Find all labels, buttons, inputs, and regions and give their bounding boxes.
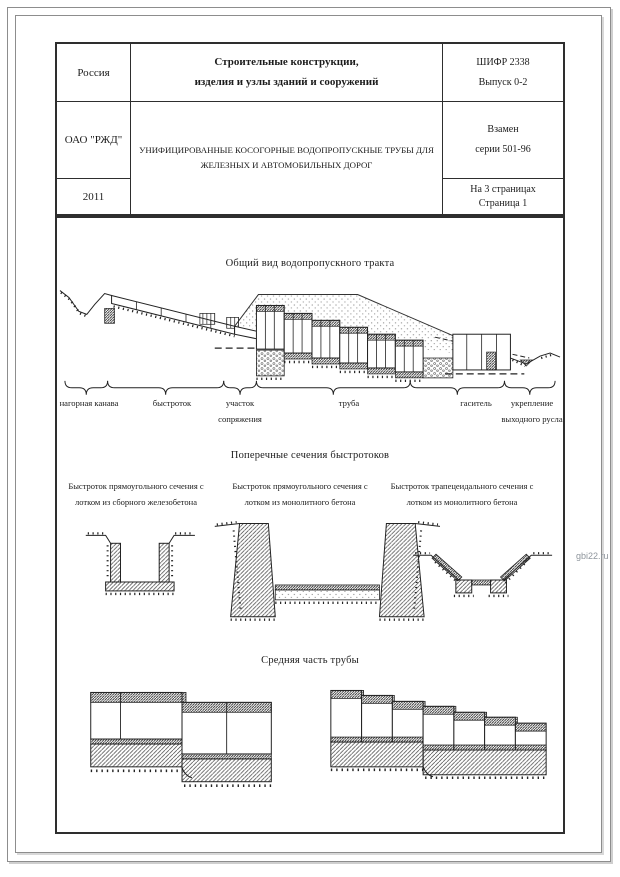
code-line2: Выпуск 0-2: [479, 73, 528, 93]
subject-title: УНИФИЦИРОВАННЫЕ КОСОГОРНЫЕ ВОДОПРОПУСКНЫ…: [139, 143, 434, 173]
label-transition-section: участок сопряжения: [203, 396, 277, 428]
foundation-block-left: [256, 350, 284, 376]
drawing-area: Общий вид водопропускного тракта: [55, 216, 565, 834]
organization-cell: ОАО "РЖД": [57, 102, 131, 179]
caption-monolithic-trapezoidal: Быстроток трапецеидального сечения с лот…: [387, 478, 537, 510]
cross-sections-title: Поперечные сечения быстротоков: [57, 450, 563, 461]
cross-sections-diagram: [58, 518, 564, 643]
year-cell: 2011: [57, 179, 131, 214]
pipe-seven-steps: [331, 690, 546, 777]
upland-ditch: [60, 291, 115, 324]
dimension-braces: [65, 381, 555, 395]
cross-section-trapezoidal: [413, 553, 552, 596]
category-line2: изделия и узлы зданий и сооружений: [195, 73, 379, 92]
general-view-title: Общий вид водопропускного тракта: [57, 258, 563, 269]
label-upland-ditch: нагорная канава: [57, 396, 121, 412]
pages-line2: Страница 1: [479, 197, 527, 211]
replaces-cell: Взамен серии 501-96: [443, 102, 563, 179]
year-label: 2011: [83, 191, 105, 203]
outlet-channel: [510, 353, 560, 366]
caption-monolithic-rectangular: Быстроток прямоугольного сечения с лотко…: [225, 478, 375, 510]
category-line1: Строительные конструкции,: [214, 53, 358, 72]
label-pipe: труба: [319, 396, 379, 412]
replaces-line2: серии 501-96: [475, 140, 531, 160]
label-chute: быстроток: [137, 396, 207, 412]
chute-band: [112, 296, 235, 337]
watermark-text: gbi22.ru: [576, 551, 609, 561]
category-cell: Строительные конструкции, изделия и узлы…: [131, 44, 443, 102]
middle-part-title: Средняя часть трубы: [57, 655, 563, 666]
code-cell: ШИФР 2338 Выпуск 0-2: [443, 44, 563, 102]
caption-precast-rectangular: Быстроток прямоугольного сечения с лотко…: [61, 478, 211, 510]
foundation-block-right: [423, 358, 453, 378]
pages-cell: На 3 страницах Страница 1: [443, 179, 563, 214]
general-view-diagram: [58, 282, 564, 442]
pages-line1: На 3 страницах: [470, 183, 536, 197]
pipe-two-steps: [91, 692, 272, 785]
country-cell: Россия: [57, 44, 131, 102]
replaces-line1: Взамен: [487, 120, 518, 140]
label-outlet-strengthening: укрепление выходного русла: [497, 396, 567, 428]
title-block-table: Россия Строительные конструкции, изделия…: [55, 42, 565, 216]
country-label: Россия: [77, 67, 109, 79]
document-page: { "page": { "watermark": "gbi22.ru" }, "…: [0, 0, 620, 877]
organization-label: ОАО "РЖД": [65, 134, 123, 146]
middle-part-diagram: [58, 682, 564, 812]
cross-section-precast: [86, 533, 195, 594]
subject-cell: УНИФИЦИРОВАННЫЕ КОСОГОРНЫЕ ВОДОПРОПУСКНЫ…: [131, 102, 443, 214]
cross-section-monolithic-rect: [215, 522, 440, 620]
code-line1: ШИФР 2338: [476, 53, 529, 73]
